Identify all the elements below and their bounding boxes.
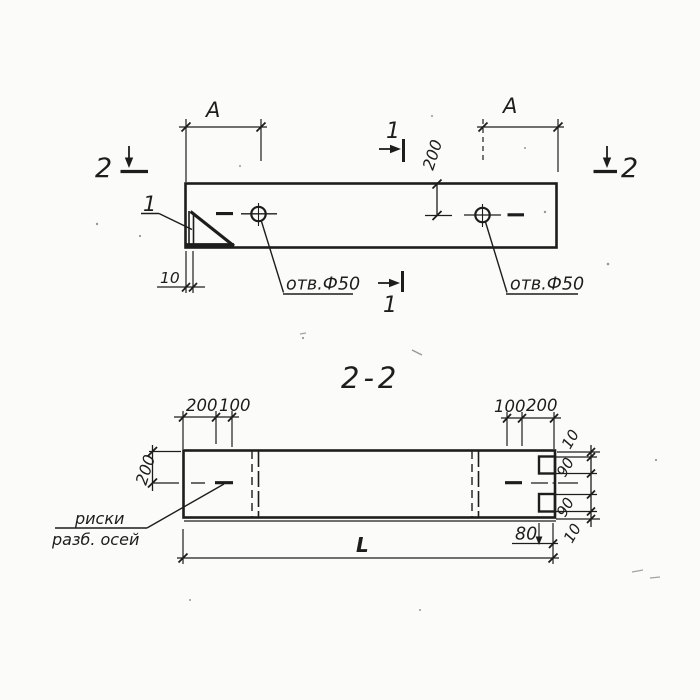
- dim-left-200-label: 200: [132, 452, 160, 487]
- section-title: 2-2: [341, 361, 400, 395]
- section-2-right-arrow: [603, 158, 611, 169]
- dim-a-right-label: A: [501, 94, 517, 118]
- dim-tr-200: 200: [526, 396, 558, 415]
- dim-tr-100: 100: [494, 397, 526, 416]
- section-line-1-bottom: 1: [378, 271, 403, 318]
- section-2-right-label: 2: [621, 153, 638, 184]
- dim-length-L: L: [177, 523, 559, 564]
- dim-tl-100: 100: [219, 396, 251, 415]
- hole-left: [216, 203, 277, 226]
- section-1-bottom-label: 1: [383, 293, 397, 318]
- section-line-1-top: 1: [379, 119, 404, 162]
- hole-note-right-text: отв.Ф50: [510, 275, 584, 295]
- dim-right-90-bottom: 90: [553, 494, 578, 520]
- section-2-left-label: 2: [95, 153, 112, 184]
- dim-a-right: A: [477, 94, 564, 172]
- axes-note-line1: риски: [74, 509, 124, 528]
- dim-hole-offset-200: 200: [419, 137, 452, 220]
- notch-bottom: [539, 494, 555, 512]
- dim-right-90-top: 90: [553, 454, 578, 480]
- dim-right-10-top: 10: [558, 426, 583, 452]
- dims-top-right: 100 200: [494, 396, 561, 449]
- dim-a-left-label: A: [204, 98, 220, 122]
- section-1-top-arrow: [390, 145, 401, 153]
- dim-a-left: A: [179, 98, 267, 182]
- plan-view: 1 A A 200: [95, 94, 638, 318]
- dim-corner-gap-10: 10: [157, 251, 205, 293]
- axes-note-line2: разб. осей: [51, 530, 139, 549]
- section-2-left-arrow: [125, 158, 133, 169]
- corner-detail-triangle: [186, 211, 235, 246]
- hidden-hole-lines: [252, 451, 479, 517]
- dim-10-label: 10: [160, 269, 180, 287]
- detail-callout-label: 1: [143, 192, 156, 216]
- dim-200-label: 200: [419, 137, 447, 172]
- drawing-sheet: 1 A A 200: [0, 0, 700, 700]
- section-view: 2-2 200 200 10: [51, 361, 600, 564]
- beam-section-outline: [184, 451, 556, 518]
- dim-right-10-bottom: 10: [560, 520, 585, 546]
- engineering-drawing: 1 A A 200: [0, 0, 700, 700]
- hole-right: [464, 204, 524, 227]
- dims-right-chain: 10 90 90 10: [553, 426, 600, 546]
- section-1-bottom-arrow: [389, 279, 400, 287]
- section-line-2-right: 2: [594, 146, 639, 184]
- hole-note-right: отв.Ф50: [486, 222, 585, 295]
- dim-80-label: 80: [515, 525, 537, 545]
- dims-top-left: 200 100: [174, 396, 251, 449]
- hole-note-left-text: отв.Ф50: [286, 275, 360, 295]
- section-1-top-label: 1: [386, 119, 400, 144]
- dim-left-200: 200: [132, 445, 181, 491]
- hole-note-left: отв.Ф50: [262, 222, 361, 295]
- section-line-2-left: 2: [95, 146, 148, 184]
- dim-tl-200: 200: [186, 396, 218, 415]
- dim-length-label: L: [356, 533, 369, 557]
- dim-notch-80: 80: [512, 523, 558, 548]
